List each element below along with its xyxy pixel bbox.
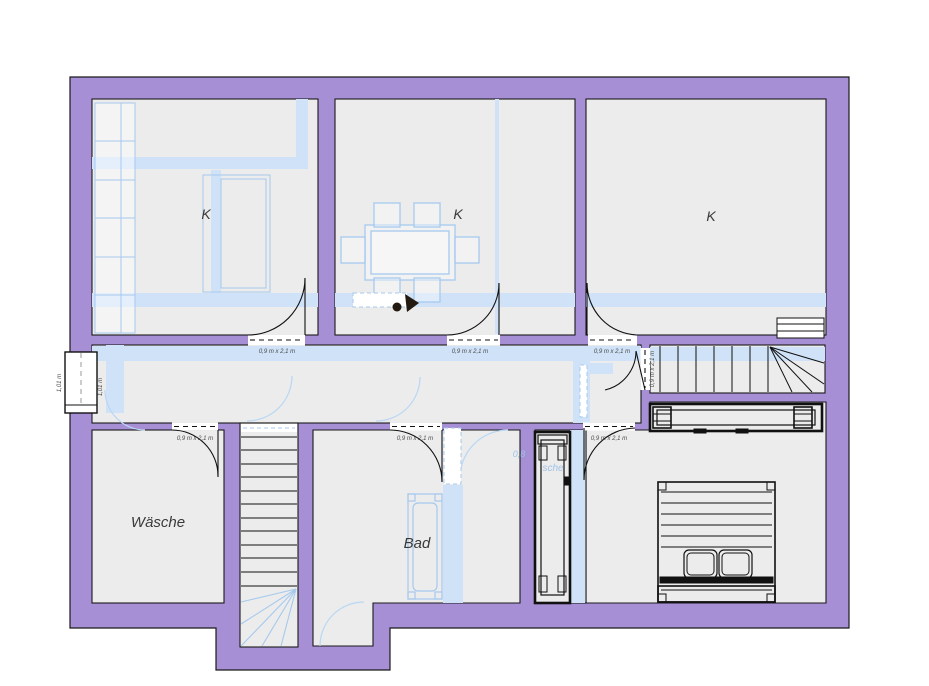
lower-wall-band: [92, 346, 641, 361]
door-size-label: 0,9 m x 2,1 m: [177, 436, 213, 442]
door-opening-k2[interactable]: [447, 335, 500, 346]
room-label-k1: K: [201, 206, 211, 222]
floor-plan-canvas: K K K Wäsche Bad 0,9 m x 2,1 m 0,9 m x 2…: [0, 0, 929, 686]
lower-wall-band: [296, 99, 308, 159]
door-size-label: 0,9 m x 2,1 m: [259, 349, 295, 355]
door-size-label: 0,9 m x 2,1 m: [397, 436, 433, 442]
lower-floor-text-fragment: sche: [542, 463, 564, 474]
door-size-label: 0,9 m x 2,1 m: [452, 349, 488, 355]
window-size-label: 1,01 m: [57, 374, 63, 392]
door-size-label: 0,9 m x 2,1 m: [591, 436, 627, 442]
lower-wall-band: [211, 170, 221, 294]
lower-wall-band: [586, 293, 826, 307]
lower-wall-band: [650, 347, 825, 361]
lower-wall-band: [106, 345, 124, 413]
lower-wall-band: [443, 485, 463, 603]
floor-plan-drawing: K K K Wäsche Bad 0,9 m x 2,1 m 0,9 m x 2…: [0, 0, 929, 686]
room-label-waesche: Wäsche: [131, 514, 185, 531]
door-opening-bad[interactable]: [390, 423, 442, 431]
stair-landing[interactable]: [777, 318, 824, 338]
room-label-k3: K: [706, 208, 716, 224]
bed-headboard: [660, 577, 773, 583]
door-size-label-vertical: 0,9 m x 2,1 m: [650, 351, 656, 387]
lower-wall-band: [590, 363, 613, 374]
room-label-bad: Bad: [404, 535, 431, 552]
window[interactable]: [65, 352, 97, 413]
door-size-label: 0,9 m x 2,1 m: [594, 349, 630, 355]
lower-floor-text-fragment: 0,8: [513, 449, 526, 459]
stairs-top-opening: [241, 424, 297, 432]
room-label-k2: K: [453, 206, 463, 222]
lower-wall-band: [570, 430, 585, 603]
window-size-label: 1,01 m: [98, 378, 104, 396]
door-opening-bedroom[interactable]: [583, 423, 635, 431]
